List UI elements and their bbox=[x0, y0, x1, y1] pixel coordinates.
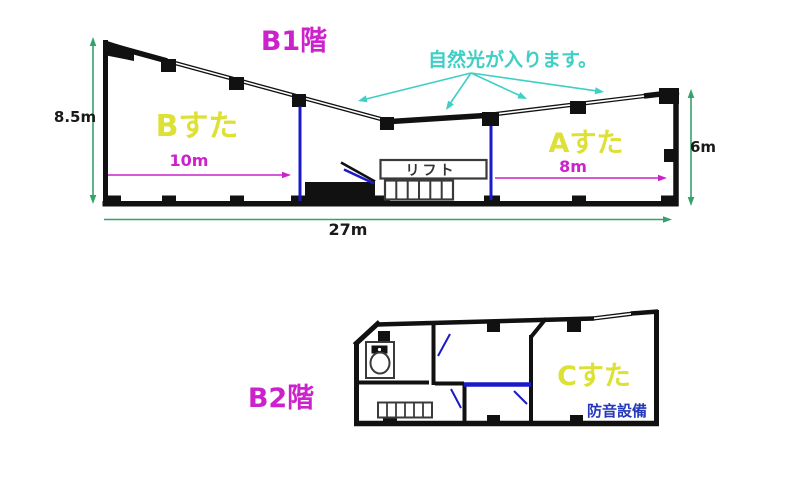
arrowhead bbox=[663, 216, 672, 223]
column bbox=[161, 59, 176, 72]
lift-label: リフト bbox=[406, 163, 457, 179]
lift-stairs-icon bbox=[385, 181, 453, 200]
stage-platform bbox=[305, 182, 375, 202]
natural-light-label: 自然光が入ります。 bbox=[428, 48, 597, 71]
stage-ramp-line bbox=[341, 163, 375, 182]
b1-title: B1階 bbox=[261, 26, 327, 57]
column bbox=[572, 196, 586, 205]
b2-top-wall-right bbox=[631, 312, 658, 314]
arrowhead bbox=[446, 101, 454, 110]
door-line-1 bbox=[438, 334, 450, 356]
dim-width-total bbox=[104, 216, 672, 223]
column bbox=[378, 331, 390, 342]
column bbox=[570, 415, 583, 424]
soundproof-label: 防音設備 bbox=[587, 402, 647, 420]
column bbox=[570, 101, 586, 114]
dim-6m-label: 6m bbox=[690, 138, 716, 156]
column bbox=[487, 415, 500, 424]
b1-plan: リフト bbox=[54, 26, 716, 239]
stairs-icon bbox=[378, 403, 432, 418]
column bbox=[664, 149, 677, 162]
studio-c-label: Cすた bbox=[557, 361, 631, 392]
column bbox=[487, 320, 500, 332]
dim-8m-label: 8m bbox=[559, 157, 587, 176]
arrowhead bbox=[358, 95, 368, 102]
column bbox=[567, 319, 581, 332]
toilet-tank-button bbox=[378, 348, 381, 351]
door-line-2 bbox=[451, 389, 461, 408]
b2-title: B2階 bbox=[248, 383, 314, 414]
column bbox=[661, 196, 677, 205]
b2-top-wall-left bbox=[377, 319, 594, 325]
b2-plan: B2階 Cすた 防音設備 bbox=[248, 310, 659, 426]
dim-27m-label: 27m bbox=[329, 220, 368, 239]
arrowhead bbox=[658, 175, 667, 182]
column bbox=[162, 196, 176, 205]
b1-topleft-corner bbox=[104, 40, 134, 61]
dim-8-5m-label: 8.5m bbox=[54, 108, 96, 126]
b1-topright-corner bbox=[659, 88, 679, 104]
toilet-icon bbox=[366, 342, 394, 378]
arrowhead bbox=[517, 92, 527, 99]
column bbox=[229, 77, 244, 90]
b1-roof-wall-segment-valley bbox=[387, 115, 489, 122]
dim-10m-label: 10m bbox=[170, 151, 209, 170]
arrowhead bbox=[688, 89, 695, 98]
studio-b-label: Bすた bbox=[156, 109, 239, 144]
studio-a-label: Aすた bbox=[549, 128, 624, 159]
arrowhead bbox=[595, 87, 604, 94]
column bbox=[107, 196, 121, 205]
arrowhead bbox=[90, 195, 97, 204]
floor-plan-canvas: リフト bbox=[0, 0, 800, 494]
column bbox=[380, 117, 394, 130]
dim-width-studio-b bbox=[108, 172, 291, 179]
column bbox=[482, 112, 499, 126]
toilet-bowl bbox=[371, 353, 390, 374]
arrowhead bbox=[688, 197, 695, 206]
column bbox=[230, 196, 244, 205]
door-line-3 bbox=[514, 391, 527, 404]
floorplan-page: リフト bbox=[0, 0, 800, 494]
arrowhead bbox=[90, 37, 97, 46]
arrowhead bbox=[282, 172, 291, 179]
column bbox=[292, 94, 306, 107]
